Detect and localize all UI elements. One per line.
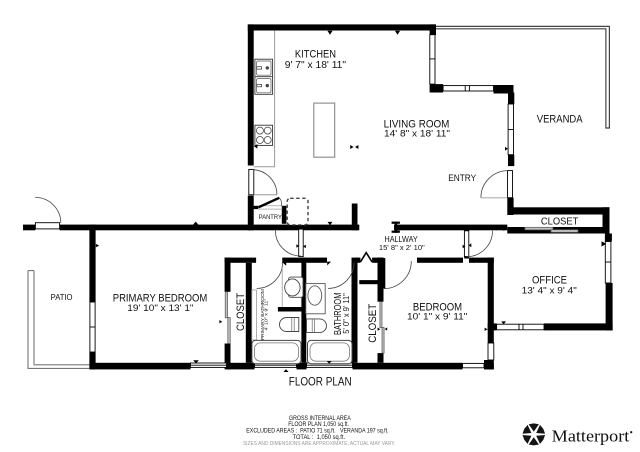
svg-text:KITCHEN: KITCHEN <box>295 49 336 61</box>
svg-text:PANTRY: PANTRY <box>259 214 283 221</box>
svg-text:19' 10" x 13' 1": 19' 10" x 13' 1" <box>127 303 193 314</box>
svg-text:VERANDA: VERANDA <box>537 113 584 125</box>
svg-text:TOTAL : 1,050 sq.ft.: TOTAL : 1,050 sq.ft. <box>293 435 346 441</box>
svg-text:5' 0" x 9' 11": 5' 0" x 9' 11" <box>342 293 351 334</box>
svg-text:ENTRY: ENTRY <box>448 173 476 184</box>
svg-text:CLOSET: CLOSET <box>367 304 379 343</box>
svg-text:CLOSET: CLOSET <box>235 293 247 331</box>
svg-text:9' 7" x 18' 11": 9' 7" x 18' 11" <box>285 60 347 71</box>
svg-text:GROSS INTERNAL AREA: GROSS INTERNAL AREA <box>289 416 351 422</box>
svg-text:4' 10" x 9' 11": 4' 10" x 9' 11" <box>264 298 269 330</box>
svg-text:FLOOR PLAN: FLOOR PLAN <box>289 374 352 388</box>
svg-text:10' 1" x 9' 11": 10' 1" x 9' 11" <box>407 311 467 322</box>
svg-text:14' 8" x 18' 11": 14' 8" x 18' 11" <box>384 129 450 140</box>
svg-text:PATIO: PATIO <box>51 293 73 302</box>
svg-text:FLOOR PLAN 1,050 sq.ft.: FLOOR PLAN 1,050 sq.ft. <box>288 422 349 428</box>
svg-text:SIZES AND DIMENSIONS ARE APPRO: SIZES AND DIMENSIONS ARE APPROXIMATE, AC… <box>243 441 396 447</box>
svg-text:15' 8" x 2' 10": 15' 8" x 2' 10" <box>379 243 425 252</box>
svg-text:CLOSET: CLOSET <box>541 217 579 228</box>
svg-text:EXCLUDED AREAS : PATIO 71 sq.: EXCLUDED AREAS : PATIO 71 sq.ft. VERANDA… <box>246 429 389 435</box>
svg-text:13' 4" x 9' 4": 13' 4" x 9' 4" <box>522 286 577 297</box>
svg-text:Matterport: Matterport <box>552 426 630 445</box>
